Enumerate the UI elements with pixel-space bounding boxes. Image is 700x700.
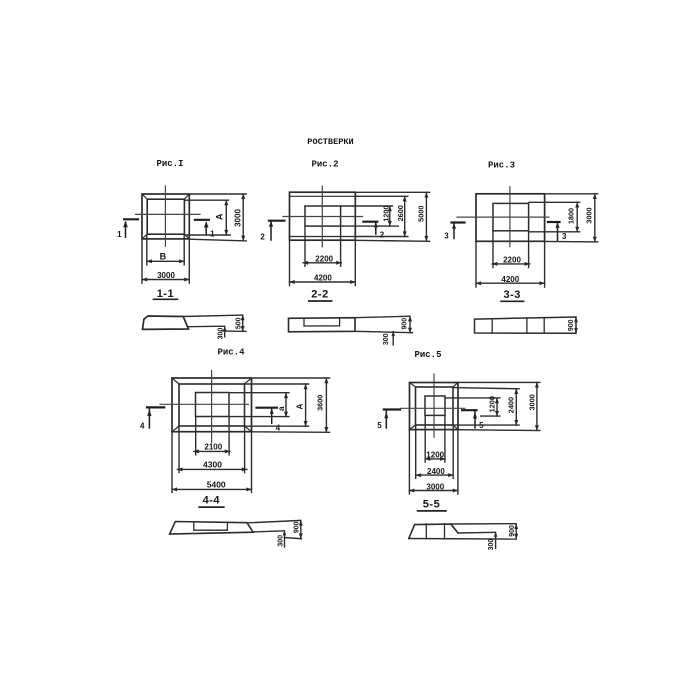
svg-text:900: 900 — [568, 319, 575, 331]
svg-text:2-2: 2-2 — [311, 288, 328, 300]
svg-text:5000: 5000 — [417, 206, 426, 222]
svg-text:Рис.4: Рис.4 — [217, 348, 245, 358]
svg-text:900: 900 — [509, 525, 516, 537]
svg-text:5-5: 5-5 — [423, 499, 440, 511]
svg-text:3000: 3000 — [157, 271, 175, 280]
svg-text:1: 1 — [117, 230, 122, 239]
svg-text:300: 300 — [218, 328, 225, 340]
svg-text:4300: 4300 — [203, 460, 222, 470]
svg-text:3000: 3000 — [528, 394, 537, 410]
svg-text:4200: 4200 — [501, 275, 519, 284]
svg-text:3600: 3600 — [316, 395, 325, 411]
svg-text:1800: 1800 — [566, 208, 575, 224]
svg-text:2100: 2100 — [204, 443, 222, 452]
svg-text:В: В — [160, 252, 167, 262]
svg-text:1200: 1200 — [426, 451, 444, 460]
svg-text:Рис.I: Рис.I — [156, 159, 183, 169]
svg-text:4-4: 4-4 — [203, 495, 221, 507]
svg-text:5400: 5400 — [207, 479, 226, 489]
svg-text:3000: 3000 — [584, 207, 593, 223]
svg-text:1-1: 1-1 — [157, 288, 174, 300]
svg-text:Рис.5: Рис.5 — [414, 350, 441, 360]
svg-text:3000: 3000 — [426, 483, 444, 492]
svg-text:2600: 2600 — [396, 205, 405, 221]
svg-text:А: А — [215, 213, 225, 220]
svg-text:3: 3 — [444, 232, 449, 241]
svg-text:300: 300 — [383, 333, 390, 345]
svg-text:А: А — [295, 404, 305, 410]
svg-text:3-3: 3-3 — [503, 289, 520, 301]
svg-text:2400: 2400 — [506, 397, 515, 413]
svg-text:2: 2 — [380, 230, 385, 239]
svg-text:а: а — [276, 406, 286, 411]
svg-text:5: 5 — [377, 421, 382, 430]
svg-text:900: 900 — [402, 318, 409, 330]
svg-text:3000: 3000 — [233, 209, 242, 227]
svg-text:4200: 4200 — [314, 274, 332, 283]
svg-text:900: 900 — [293, 521, 300, 533]
svg-text:2: 2 — [260, 233, 265, 242]
svg-text:500: 500 — [236, 317, 243, 329]
svg-text:1200: 1200 — [488, 396, 497, 412]
svg-text:1200: 1200 — [382, 205, 391, 221]
svg-text:РОСТВЕРКИ: РОСТВЕРКИ — [307, 137, 353, 147]
svg-text:2200: 2200 — [315, 254, 333, 263]
svg-text:2200: 2200 — [503, 255, 521, 264]
svg-text:2400: 2400 — [427, 467, 445, 476]
svg-text:4: 4 — [140, 421, 145, 430]
svg-text:1: 1 — [210, 230, 215, 239]
svg-text:300: 300 — [488, 539, 495, 551]
svg-text:3: 3 — [562, 232, 567, 241]
svg-text:300: 300 — [277, 535, 284, 547]
svg-text:Рис.3: Рис.3 — [488, 161, 515, 171]
svg-text:Рис.2: Рис.2 — [311, 160, 338, 170]
